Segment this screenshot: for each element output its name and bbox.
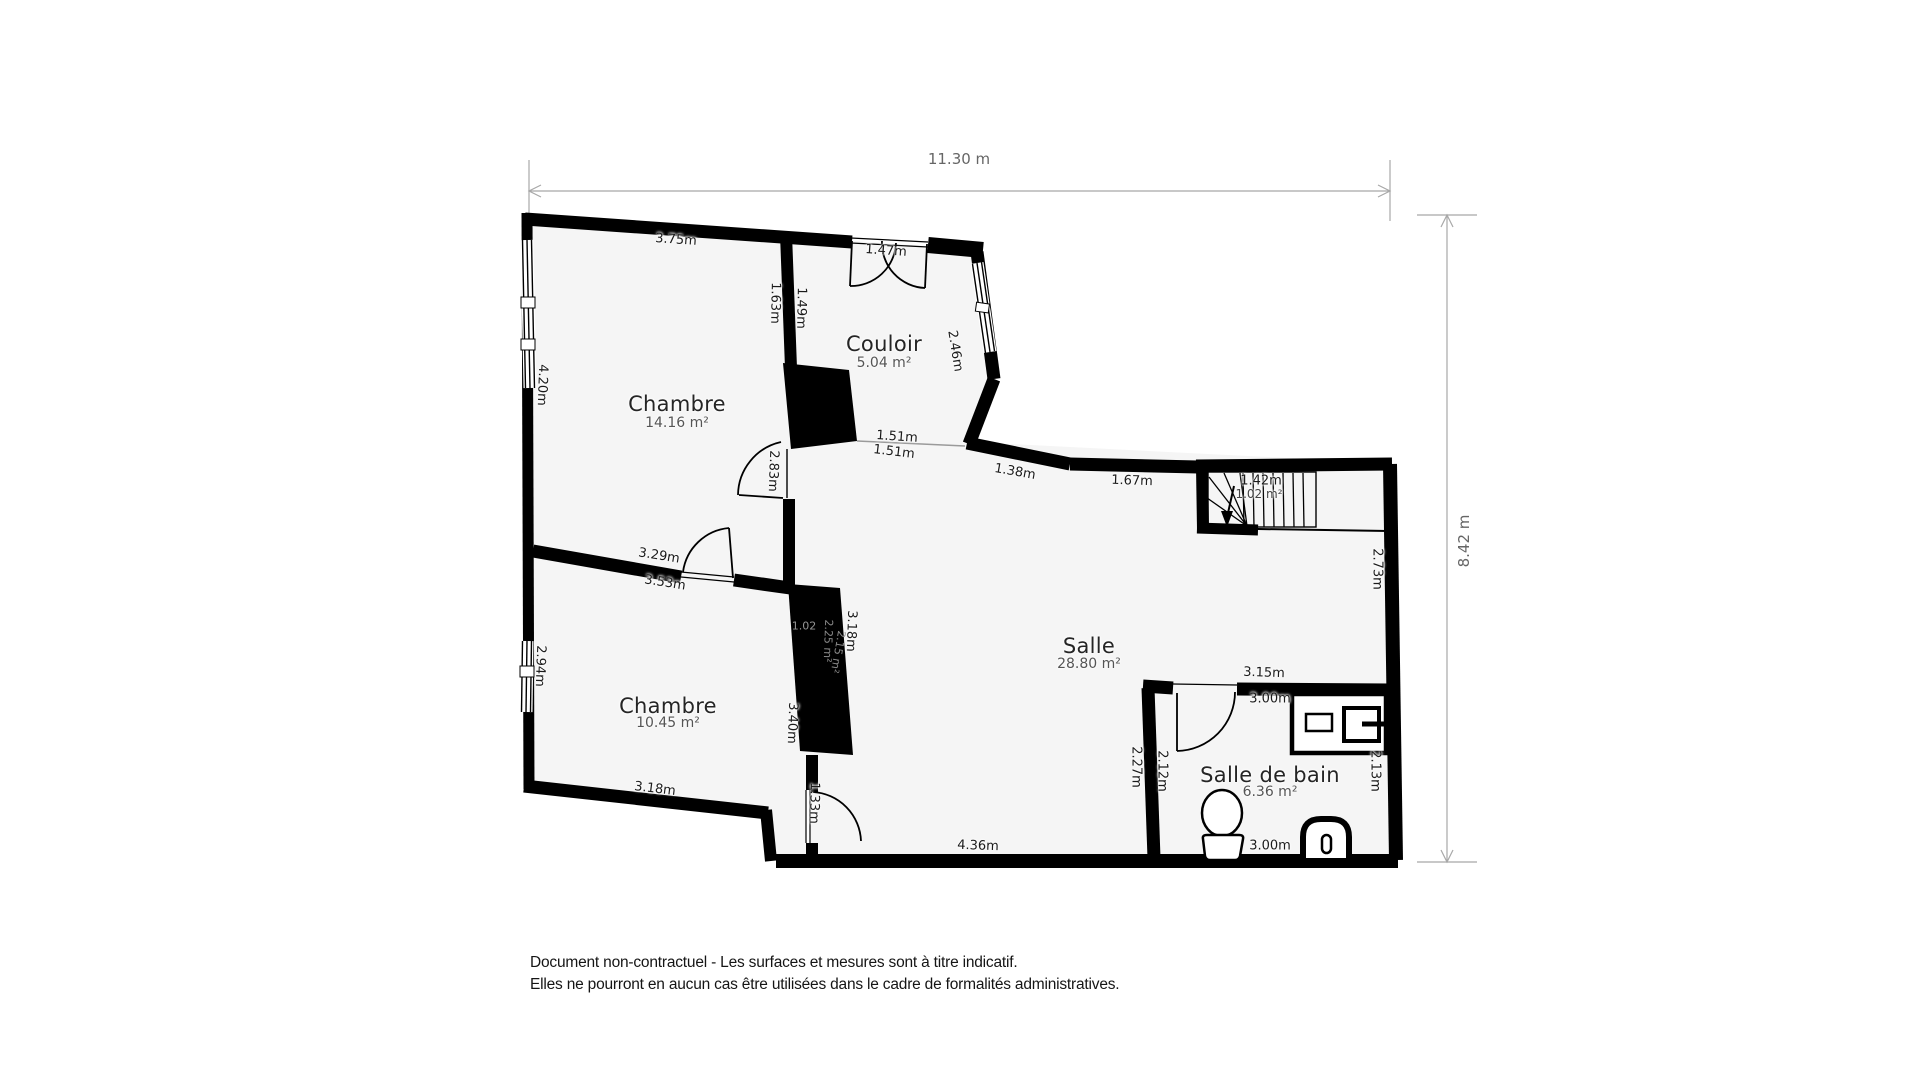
room-label-couloir: Couloir — [846, 332, 922, 356]
measure-bath-left-outer: 2.27m — [1129, 746, 1144, 788]
measure-bath-top-inner: 3.00m — [1249, 692, 1291, 707]
room-area-chambre2: 10.45 m² — [636, 715, 700, 731]
measure-couloir-left: 1.49m — [793, 287, 809, 329]
toilet-icon — [1202, 790, 1243, 860]
measure-duct-right: 3.18m — [843, 610, 859, 652]
duct-label-a: 1.02 — [792, 620, 817, 633]
measure-bath-bottom: 3.00m — [1249, 839, 1291, 854]
measure-salle-right: 2.73m — [1370, 548, 1385, 590]
measure-chambre2-left: 2.94m — [532, 645, 548, 687]
stairs-area-label: 1.02 m² — [1235, 487, 1282, 501]
right-dimension-label: 8.42 m — [1455, 515, 1473, 568]
room-area-couloir: 5.04 m² — [857, 355, 912, 371]
disclaimer-line-2: Elles ne pourront en aucun cas être util… — [530, 974, 1119, 996]
measure-chambre1-door: 2.83m — [765, 450, 781, 492]
room-label-salle: Salle — [1063, 634, 1115, 658]
room-label-chambre1: Chambre — [628, 392, 726, 416]
measure-bath-top-outer: 3.15m — [1243, 665, 1285, 681]
top-dimension-line — [529, 160, 1390, 221]
measure-chambre2-right: 3.40m — [784, 702, 800, 744]
measure-bath-left-inner: 2.12m — [1155, 750, 1170, 792]
measure-bath-right: 2.13m — [1368, 750, 1383, 792]
room-area-salle: 28.80 m² — [1057, 656, 1121, 672]
measure-salle-door: 1.33m — [806, 782, 822, 824]
floor-plan-page: 11.30 m 8.42 m Chambre 14.16 m² Couloir … — [0, 0, 1920, 1080]
window-chambre1-left — [521, 240, 535, 388]
room-area-salle-de-bain: 6.36 m² — [1243, 784, 1298, 800]
measure-chambre1-left: 4.20m — [534, 364, 550, 406]
disclaimer: Document non-contractuel - Les surfaces … — [530, 952, 1119, 996]
vanity-sink-icon — [1292, 694, 1394, 753]
disclaimer-line-1: Document non-contractuel - Les surfaces … — [530, 952, 1119, 974]
measure-entrance-door: 1.47m — [865, 242, 908, 260]
radiator-icon — [1303, 819, 1349, 858]
top-dimension-label: 11.30 m — [928, 150, 990, 168]
room-area-chambre1: 14.16 m² — [645, 415, 709, 431]
measure-chambre1-top: 3.75m — [655, 231, 698, 249]
measure-chambre1-right: 1.63m — [767, 282, 783, 324]
measure-salle-top-b: 1.67m — [1111, 473, 1153, 489]
measure-salle-bottom: 4.36m — [957, 838, 999, 854]
